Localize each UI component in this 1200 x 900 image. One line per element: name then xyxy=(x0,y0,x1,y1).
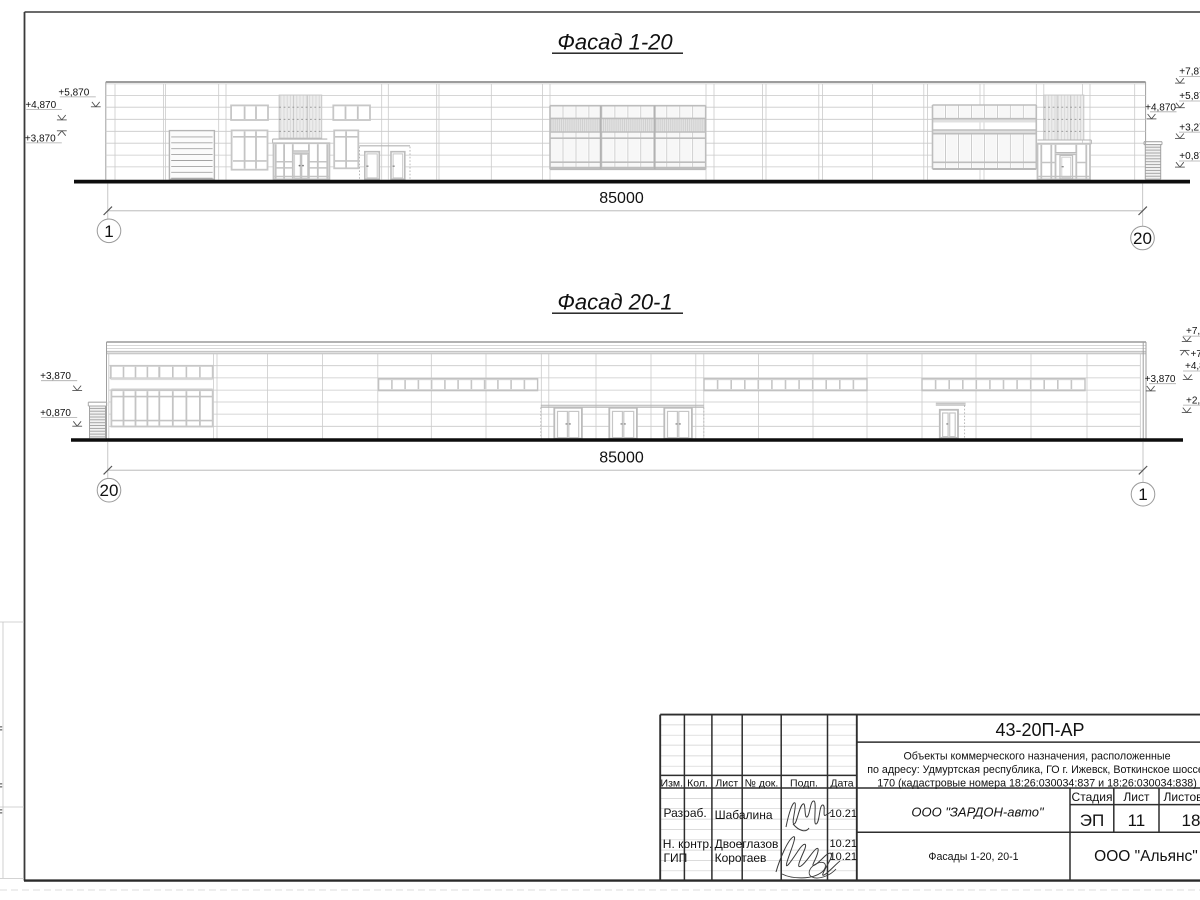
svg-text:Коротаев: Коротаев xyxy=(715,851,767,865)
svg-text:43-20П-АР: 43-20П-АР xyxy=(996,720,1085,740)
svg-text:ГИП: ГИП xyxy=(664,851,688,865)
svg-text:Дата: Дата xyxy=(830,777,853,789)
svg-text:+4,870: +4,870 xyxy=(1185,361,1200,372)
svg-text:85000: 85000 xyxy=(599,450,644,467)
svg-text:+0,870: +0,870 xyxy=(1179,151,1200,162)
svg-text:Разраб.: Разраб. xyxy=(664,806,707,820)
svg-text:+7,370: +7,370 xyxy=(1191,349,1200,360)
svg-text:№ док.: № док. xyxy=(745,777,779,789)
svg-text:85000: 85000 xyxy=(599,190,644,207)
svg-text:11: 11 xyxy=(1128,811,1146,830)
svg-text:1: 1 xyxy=(104,222,113,241)
svg-text:+5,870: +5,870 xyxy=(1179,91,1200,102)
svg-text:Объекты коммерческого назначен: Объекты коммерческого назначения, распол… xyxy=(903,750,1170,762)
svg-text:Двоеглазов: Двоеглазов xyxy=(715,837,779,851)
svg-text:18: 18 xyxy=(1182,811,1200,830)
svg-text:1: 1 xyxy=(1138,485,1147,504)
svg-text:Изм.: Изм. xyxy=(661,777,684,789)
svg-text:20: 20 xyxy=(100,481,119,500)
svg-text:Кол.: Кол. xyxy=(687,777,708,789)
svg-text:20: 20 xyxy=(1133,229,1152,248)
svg-text:10.21: 10.21 xyxy=(830,851,858,863)
svg-text:Подп.: Подп. xyxy=(790,777,818,789)
svg-text:170 (кадастровые номера 18:26:: 170 (кадастровые номера 18:26:030034:837… xyxy=(877,777,1197,789)
svg-text:+7,870: +7,870 xyxy=(1179,66,1200,77)
svg-text:по адресу: Удмуртская республи: по адресу: Удмуртская республика, ГО г. … xyxy=(867,764,1200,776)
svg-text:+7,870: +7,870 xyxy=(1186,326,1200,337)
svg-text:Лист: Лист xyxy=(715,777,738,789)
svg-text:ООО "ЗАРДОН-авто": ООО "ЗАРДОН-авто" xyxy=(911,804,1045,819)
svg-text:Лист: Лист xyxy=(1123,790,1150,804)
svg-text:ООО "Альянс": ООО "Альянс" xyxy=(1094,848,1198,865)
svg-text:Шабалина: Шабалина xyxy=(715,808,773,822)
svg-text:Листов: Листов xyxy=(1164,790,1200,804)
svg-text:10.21: 10.21 xyxy=(830,838,858,850)
svg-text:Фасад 1-20: Фасад 1-20 xyxy=(557,30,673,55)
svg-text:Стадия: Стадия xyxy=(1072,790,1113,804)
svg-text:Н. контр.: Н. контр. xyxy=(663,837,713,851)
svg-text:Фасад 20-1: Фасад 20-1 xyxy=(557,290,672,315)
svg-text:10.21: 10.21 xyxy=(830,808,858,820)
svg-text:Фасады 1-20, 20-1: Фасады 1-20, 20-1 xyxy=(928,851,1018,863)
svg-text:ЭП: ЭП xyxy=(1080,811,1104,830)
